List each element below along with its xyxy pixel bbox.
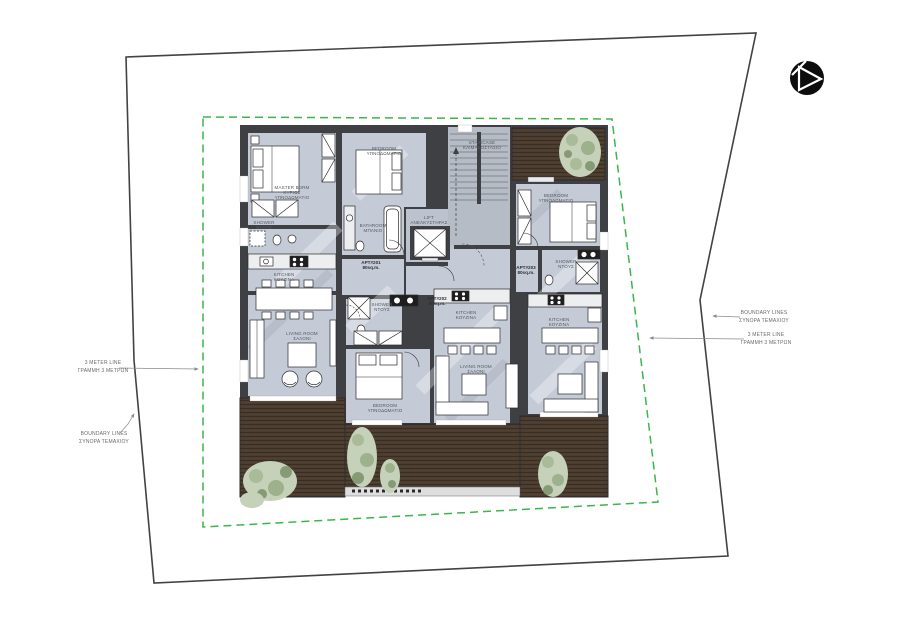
annotation-line: ΓΡΑΜΜΗ 3 ΜΕΤΡΩΝ (741, 340, 792, 346)
annotation-meter-right: 3 METER LINE ΓΡΑΜΜΗ 3 ΜΕΤΡΩΝ (718, 332, 814, 347)
page-canvas: MASTER BDRM ΚΥΡΙΩΣ ΥΠΝΟΔΩΜΑΤΙΟ BEDROOM Υ… (0, 0, 900, 636)
label-shower-right-gr: ΝΤΟΥΣ (558, 264, 574, 269)
label-lift-gr: ΑΝΕΛΚΥΣΤΗΡΑΣ (410, 220, 447, 225)
annotation-line: BOUNDARY LINES (741, 310, 788, 316)
label-staircase-gr: ΚΛΙΜΑΚΟΣΤΑΣΙΟ (463, 145, 501, 150)
label-bedroom-mid-gr: ΥΠΝΟΔΩΜΑΤΙΟ (368, 408, 403, 413)
stove-icon (290, 256, 308, 267)
label-living-left-gr: ΣΑΛΟΝΙ (293, 336, 311, 341)
annotation-line: ΣΥΝΟΡΑ ΤΕΜΑΧΙΟΥ (79, 439, 129, 445)
annotation-line: 3 METER LINE (748, 332, 785, 338)
annotation-line: BOUNDARY LINES (81, 431, 128, 437)
annotation-meter-left: 3 METER LINE ΓΡΑΜΜΗ 3 ΜΕΤΡΩΝ (55, 360, 151, 375)
label-apt201-area: 80sq.m. (362, 265, 379, 270)
label-apt202-area: 80sq.m. (428, 301, 445, 306)
toilet-icon (273, 235, 281, 245)
label-bedroom-right-gr: ΥΠΝΟΔΩΜΑΤΙΟ (539, 198, 574, 203)
annotation-line: ΣΥΝΟΡΑ ΤΕΜΑΧΙΟΥ (739, 318, 789, 324)
label-kitchen-mid-gr: ΚΟΥΖΙΝΑ (456, 315, 477, 320)
sofa-icon (436, 356, 449, 408)
label-kitchen-right-gr: ΚΟΥΖΙΝΑ (549, 322, 570, 327)
label-bedroom-top-gr: ΥΠΝΟΔΩΜΑΤΙΟ (367, 151, 402, 156)
label-kitchen-left-gr: ΚΟΥΖΙΝΑ (274, 277, 295, 282)
annotation-boundary-left: BOUNDARY LINES ΣΥΝΟΡΑ ΤΕΜΑΧΙΟΥ (56, 431, 152, 446)
label-shower-left-gr: ΝΤΟΥΣ (256, 225, 272, 230)
shower-tray-icon (250, 231, 265, 246)
label-shower-mid-gr: ΝΤΟΥΣ (374, 307, 390, 312)
annotation-line: 3 METER LINE (85, 360, 122, 366)
label-apt203-area: 80sq.m. (517, 270, 534, 275)
table-icon (256, 288, 332, 310)
plant-bottom-right (538, 451, 568, 497)
floor-entrance-hall (448, 249, 510, 295)
annotation-boundary-right: BOUNDARY LINES ΣΥΝΟΡΑ ΤΕΜΑΧΙΟΥ (716, 310, 812, 325)
label-living-mid-gr: ΣΑΛΟΝΙ (467, 369, 485, 374)
annotation-line: ΓΡΑΜΜΗ 3 ΜΕΤΡΩΝ (78, 368, 129, 374)
label-bathroom-gr: ΜΠΑΝΙΟ (364, 228, 383, 233)
sink-icon (288, 235, 296, 243)
lift-cabin (410, 226, 450, 261)
deck-balustrade (345, 487, 520, 496)
company-logo-icon (790, 61, 824, 95)
label-master-bedroom-gr2: ΥΠΝΟΔΩΜΑΤΙΟ (275, 195, 310, 200)
plant-top-right (559, 127, 601, 177)
